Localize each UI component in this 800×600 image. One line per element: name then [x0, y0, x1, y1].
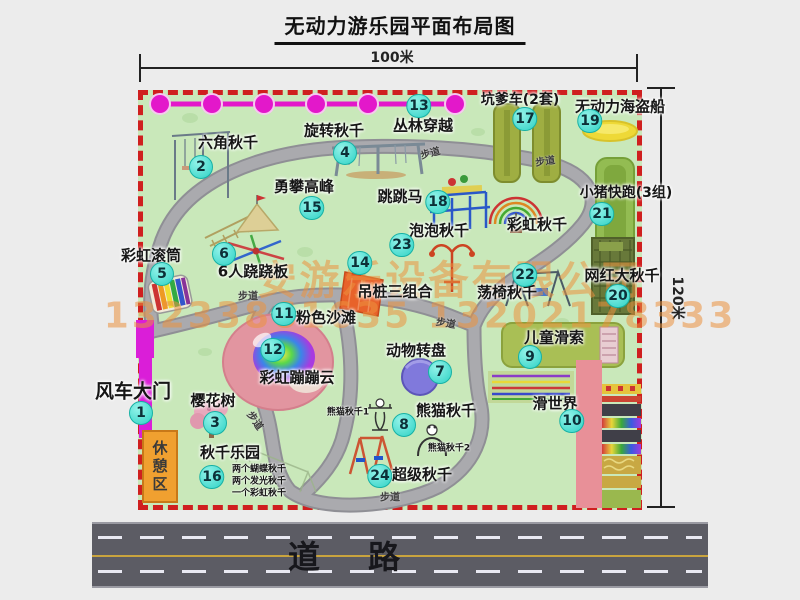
dimension-tick-top: [647, 87, 675, 89]
label-rainbow-bouncing-cloud: 彩虹蹦蹦云: [259, 367, 334, 388]
label-windmill-gate: 风车大门: [95, 377, 171, 404]
marker-5: 5: [150, 262, 174, 286]
label-panda-swing: 熊猫秋千: [416, 400, 476, 421]
marker-2: 2: [189, 155, 213, 179]
dimension-width-label: 100米: [370, 47, 413, 67]
label-pit-car: 坑爹车(2套): [481, 89, 560, 109]
road-label: 道路: [288, 532, 448, 578]
dimension-tick-right: [636, 54, 638, 82]
label-kids-zipline: 儿童滑索: [524, 327, 584, 348]
label-hanging-stake-combo: 吊桩三组合: [357, 281, 432, 302]
rest-area: 休憩区: [142, 430, 178, 503]
label-bubble-swing: 泡泡秋千: [409, 220, 469, 241]
label-piggy-run: 小猪快跑(3组): [580, 182, 673, 202]
marker-3: 3: [203, 411, 227, 435]
label-super-swing: 超级秋千: [392, 464, 452, 485]
marker-7: 7: [428, 360, 452, 384]
label-panda-swing-1: 熊猫秋千1: [327, 405, 369, 418]
label-animal-carousel: 动物转盘: [386, 340, 446, 361]
label-swing-paradise-item-3: 一个彩虹秋千: [232, 486, 286, 499]
label-panda-swing-2: 熊猫秋千2: [428, 441, 470, 454]
marker-8: 8: [392, 413, 416, 437]
label-cherry-tree: 樱花树: [190, 390, 235, 411]
dimension-line-horizontal: [140, 67, 638, 69]
trail-label: 步道: [534, 151, 556, 169]
trail-label: 步道: [435, 313, 457, 331]
watermark-phone: 13233861635 13202178333: [104, 296, 737, 337]
dimension-tick-bottom: [647, 506, 675, 508]
label-rainbow-swing: 彩虹秋千: [507, 214, 567, 235]
marker-1: 1: [129, 401, 153, 425]
label-rotating-swing: 旋转秋千: [304, 120, 364, 141]
rest-area-label: 休憩区: [150, 440, 171, 494]
page-title: 无动力游乐园平面布局图: [275, 10, 526, 45]
playground-layout-map: 无动力游乐园平面布局图 100米 120米: [0, 0, 800, 600]
marker-4: 4: [333, 141, 357, 165]
label-swing-paradise: 秋千乐园: [200, 442, 260, 463]
trail-label: 步道: [380, 489, 400, 504]
label-pink-beach: 粉色沙滩: [296, 307, 356, 328]
dimension-tick-left: [139, 54, 141, 82]
label-jumping-horse: 跳跳马: [377, 186, 422, 207]
label-peak-climbing: 勇攀高峰: [274, 176, 334, 197]
label-rainbow-roller: 彩虹滚筒: [121, 245, 181, 266]
road: 道路: [92, 522, 708, 588]
label-hexagon-swing: 六角秋千: [198, 132, 258, 153]
trail-label: 步道: [238, 288, 258, 303]
label-jungle-crossing: 丛林穿越: [393, 115, 453, 136]
label-big-web-swing: 网红大秋千: [584, 265, 659, 286]
marker-6: 6: [212, 242, 236, 266]
marker-9: 9: [518, 345, 542, 369]
